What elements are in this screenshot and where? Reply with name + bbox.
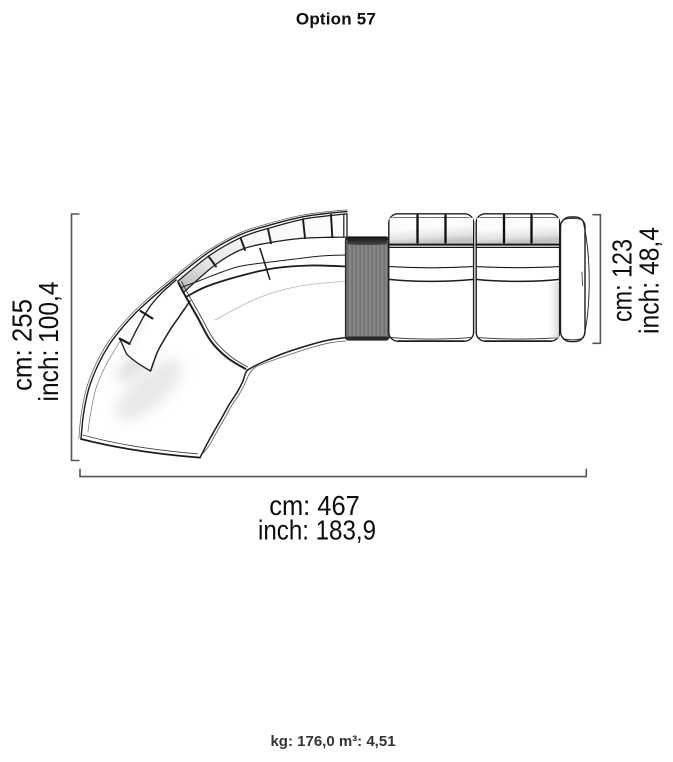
svg-text:inch: 100,4: inch: 100,4 — [33, 282, 64, 402]
svg-text:inch: 183,9: inch: 183,9 — [258, 515, 376, 546]
svg-text:kg: 176,0 m³: 4,51: kg: 176,0 m³: 4,51 — [270, 733, 395, 750]
svg-text:Option 57: Option 57 — [296, 10, 376, 29]
svg-text:inch: 48,4: inch: 48,4 — [634, 227, 665, 334]
